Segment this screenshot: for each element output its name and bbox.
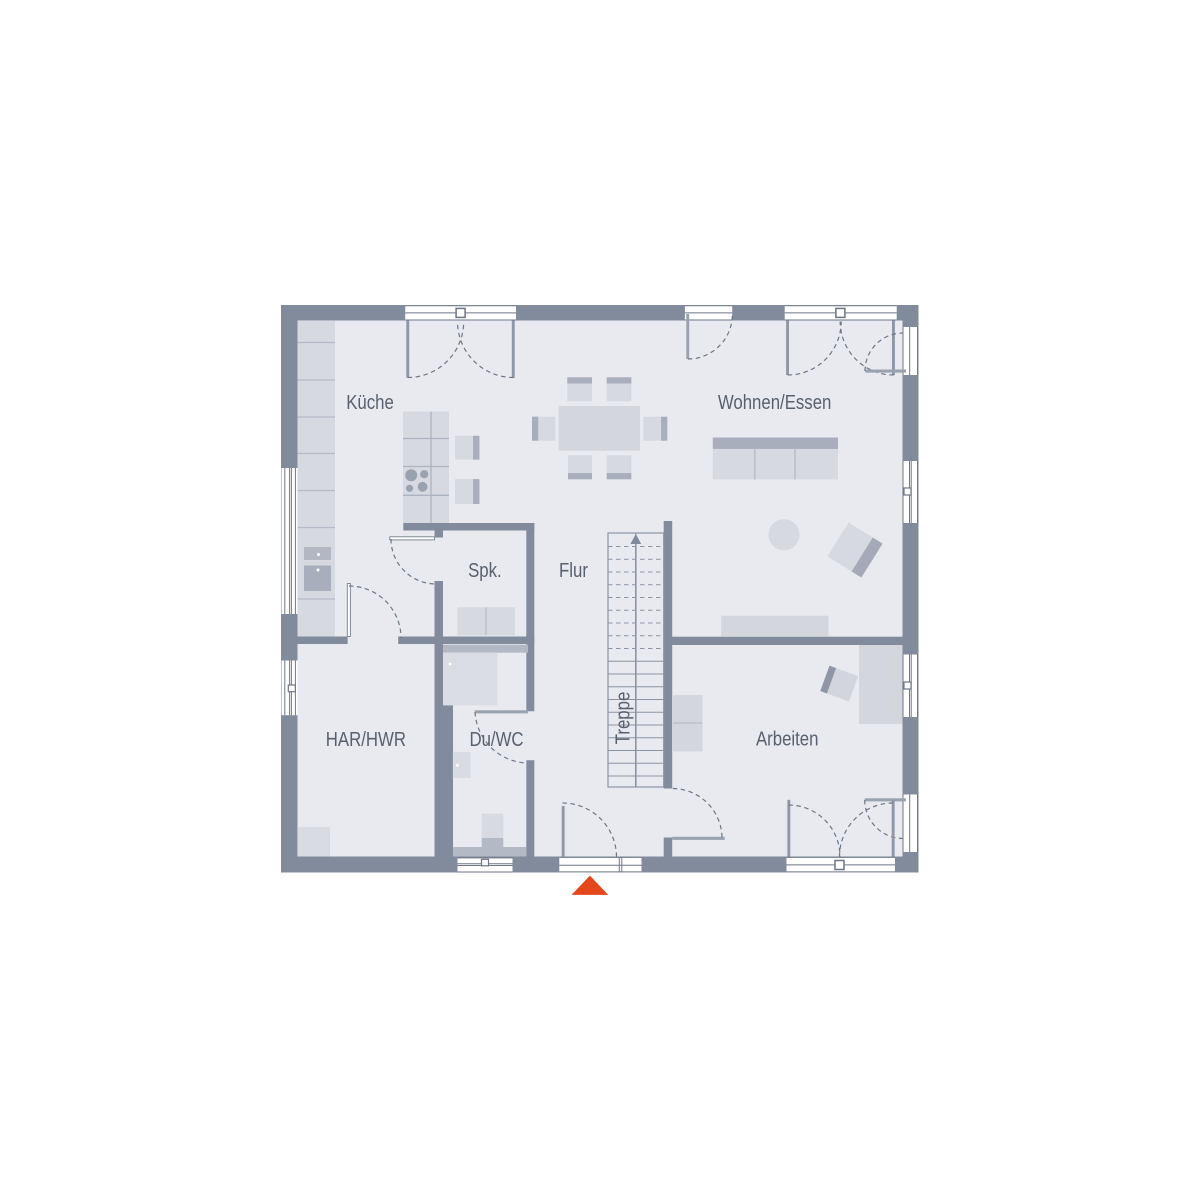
svg-text:HAR/HWR: HAR/HWR — [326, 727, 406, 750]
svg-text:Küche: Küche — [346, 391, 394, 414]
svg-text:Arbeiten: Arbeiten — [756, 727, 819, 750]
svg-text:Flur: Flur — [559, 559, 588, 582]
svg-text:Wohnen/Essen: Wohnen/Essen — [718, 391, 832, 414]
svg-text:Treppe: Treppe — [611, 692, 634, 745]
svg-text:Spk.: Spk. — [468, 559, 502, 582]
svg-text:Du/WC: Du/WC — [469, 727, 523, 750]
